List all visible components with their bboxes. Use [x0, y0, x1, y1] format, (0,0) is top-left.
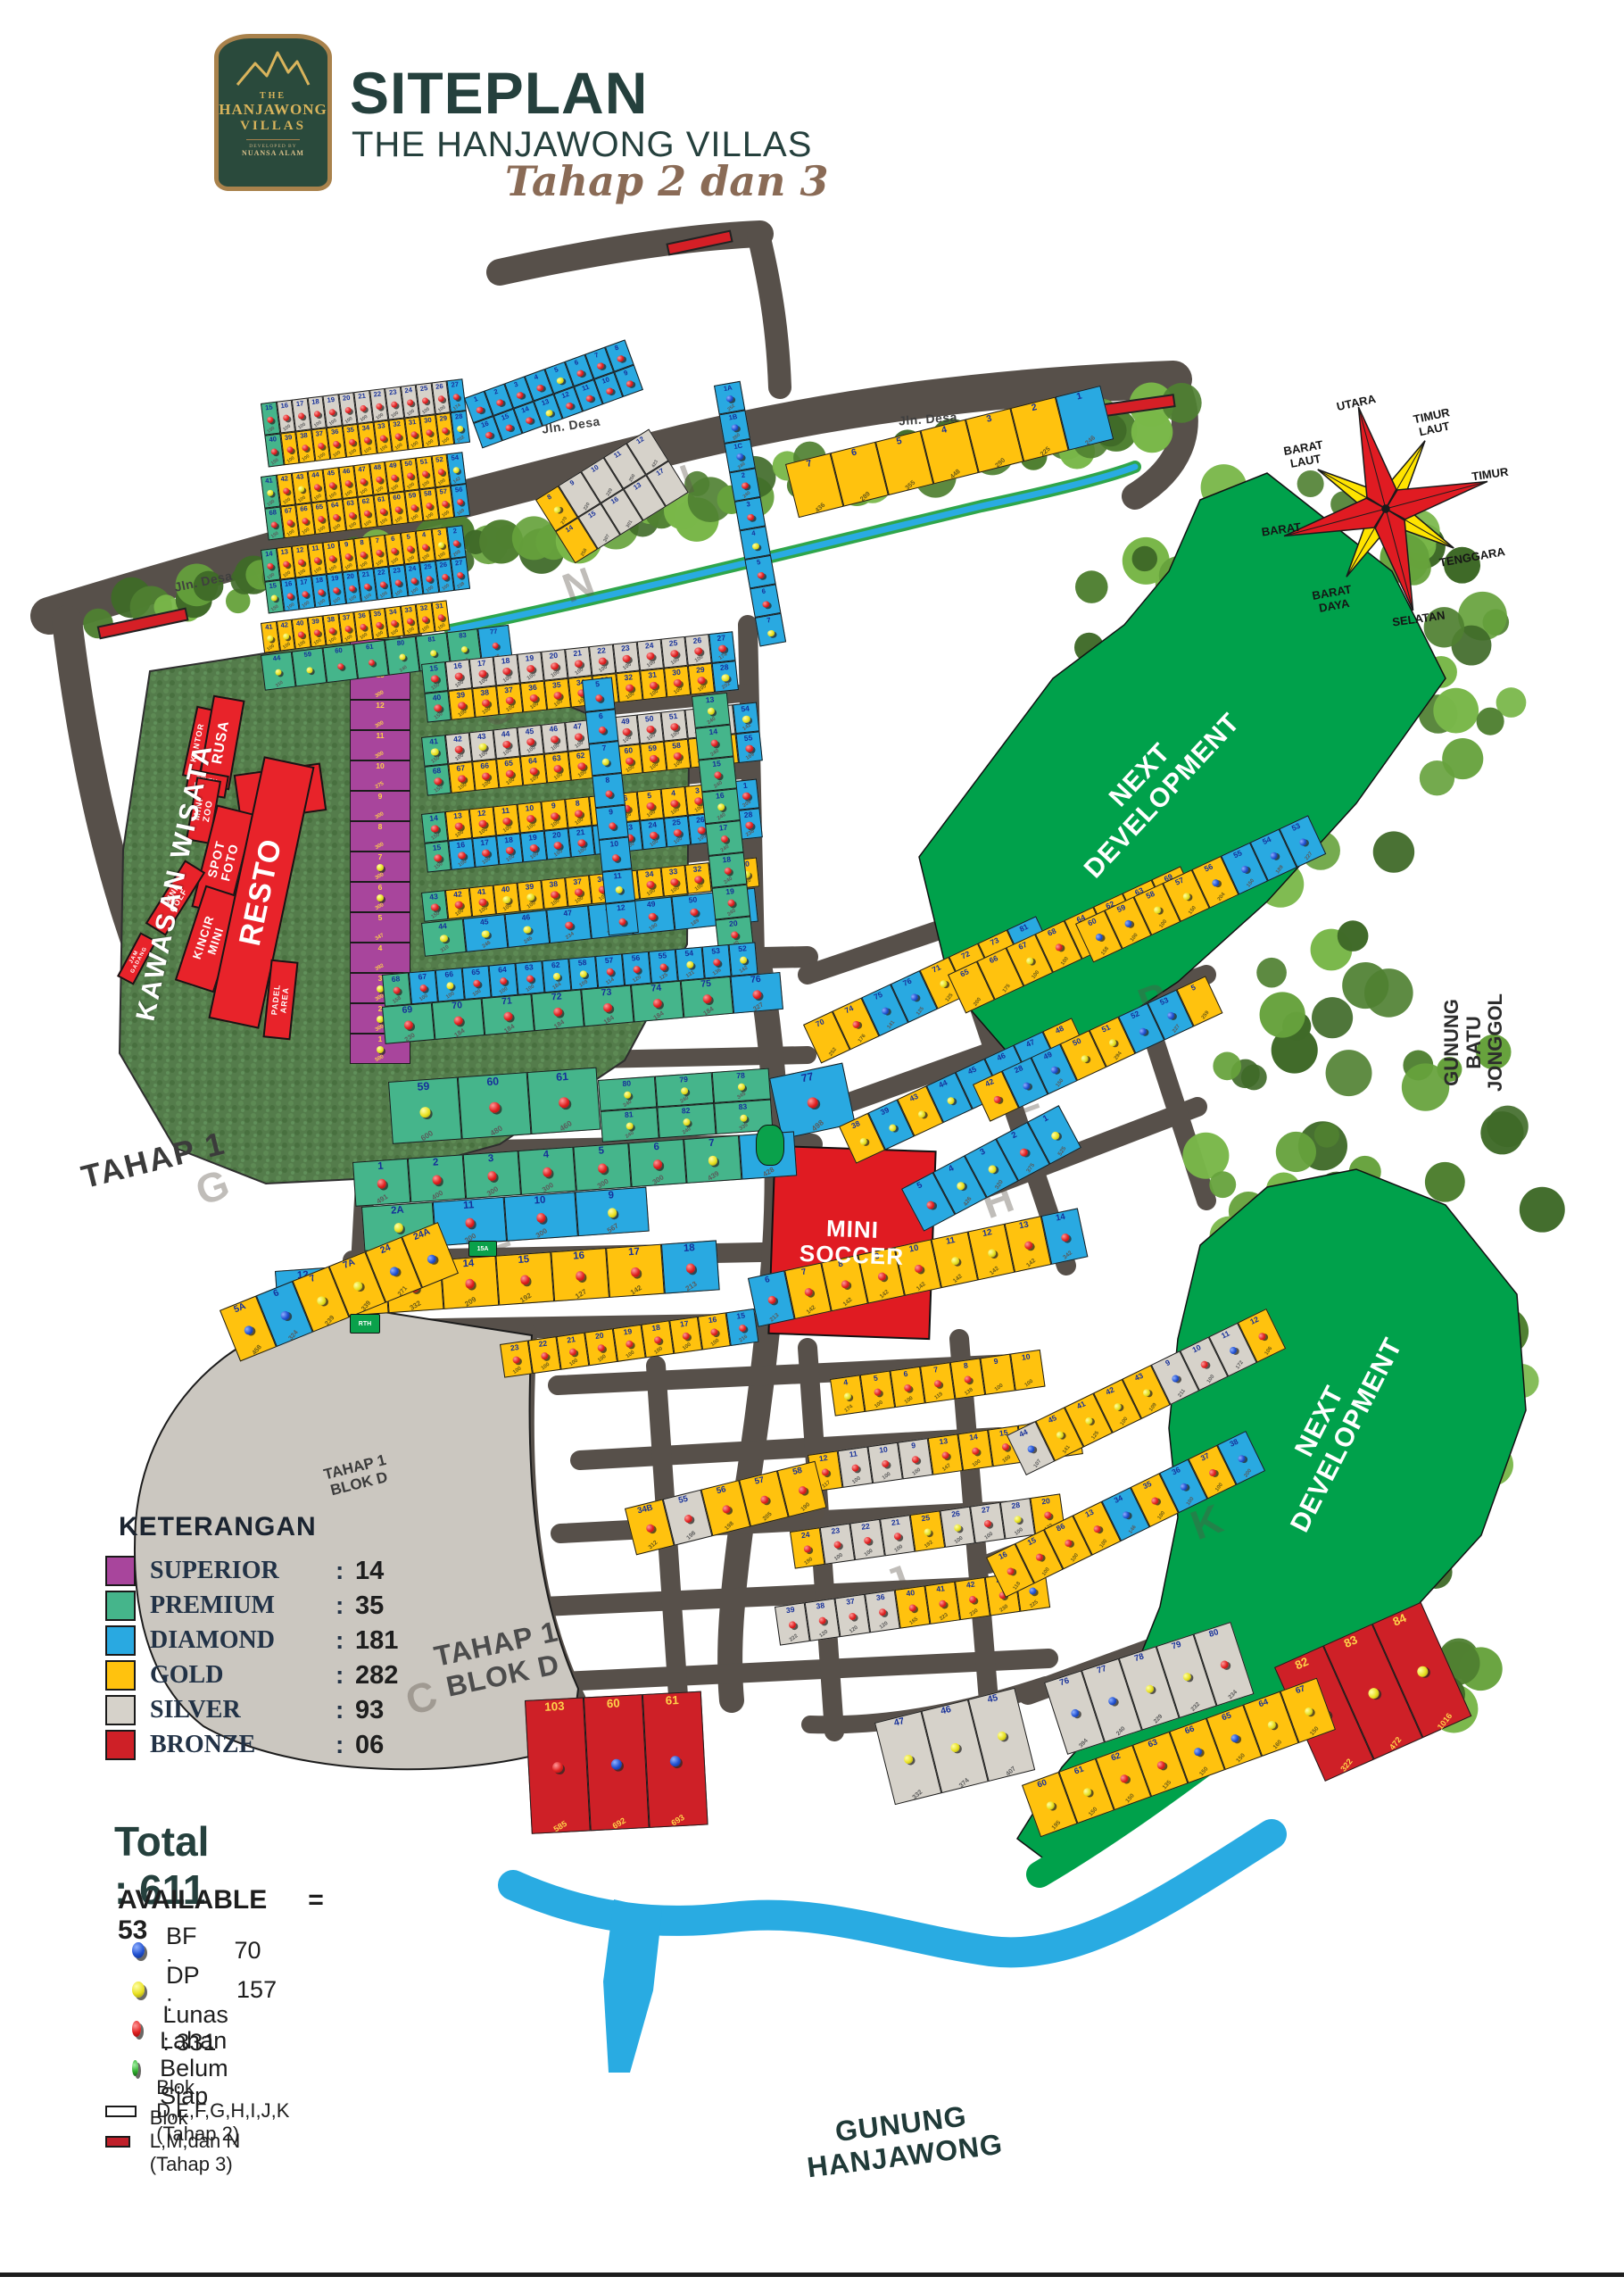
plot-number: 39 [525, 883, 534, 891]
plot-number: 6 [272, 1289, 280, 1300]
plot-size: 142 [990, 1267, 1001, 1277]
plot-size: 100 [506, 778, 517, 787]
legend-item-colon: : [336, 1731, 355, 1759]
plot-cell: 22100 [589, 644, 616, 676]
plot-cell: 41100 [469, 885, 496, 918]
plot-cell: 7439 [684, 1135, 742, 1184]
plot-size: 184 [652, 1010, 665, 1021]
plot-number: 3 [488, 1154, 494, 1165]
plot-number: 45 [327, 469, 335, 478]
status-pin-icon [798, 1485, 808, 1495]
status-pin-icon [348, 511, 355, 519]
plot-size: 189 [690, 919, 700, 928]
plot-number: 4 [751, 529, 756, 536]
plot-number: 6 [574, 359, 580, 367]
plot-number: 20 [343, 395, 351, 403]
plot-number: 2 [1010, 1131, 1018, 1141]
status-pin-icon [376, 476, 383, 483]
plot-number: 27 [455, 560, 463, 568]
plot-size: 100 [674, 760, 684, 769]
plot-number: 27 [981, 1506, 990, 1515]
status-pin-icon [388, 1266, 400, 1277]
plot-number: 16 [456, 841, 465, 849]
plot-number: 68 [1047, 927, 1057, 938]
status-pin-icon [1035, 1553, 1045, 1563]
plot-number: 4 [422, 531, 427, 538]
plot-size: 127 [575, 1288, 588, 1300]
plot-number: 2 [452, 528, 457, 535]
plot-cell: 54131 [675, 947, 705, 981]
plot-cell: 5100 [860, 1371, 896, 1412]
status-pin-icon [441, 573, 448, 580]
plot-number: 79 [679, 1076, 688, 1084]
plot-size: 165 [909, 1617, 920, 1627]
plot-number: 21 [573, 649, 582, 657]
plot-number: 83 [1342, 1633, 1359, 1649]
facility-label: MINI ZOO [192, 798, 215, 824]
plot-number: 9 [623, 370, 629, 378]
legend-item: PREMIUM:35 [105, 1590, 384, 1622]
plot-number: 18 [651, 1324, 661, 1333]
plot-number: 24 [648, 821, 657, 829]
plot-size: 100 [364, 519, 373, 528]
status-pin-icon [426, 502, 433, 509]
plot-size: 100 [422, 625, 431, 633]
plot-size: 300 [375, 873, 385, 882]
plot-cell: 39100 [517, 880, 543, 912]
legend-bar-row: Blok L,M,dan N (Tahap 3) [105, 2130, 247, 2153]
plot-number: 69 [402, 1006, 412, 1016]
plot-cell: 46100 [541, 722, 568, 754]
legend-item-label: SILVER [150, 1696, 336, 1724]
plot-cell: 11 [602, 868, 636, 903]
plot-number: 10 [525, 804, 534, 812]
status-pin-icon [360, 478, 367, 485]
plot-size: 100 [458, 860, 468, 868]
plot-cell: 103585 [525, 1698, 591, 1834]
status-pin-icon [903, 1754, 914, 1765]
plot-number: 42 [453, 890, 462, 898]
plot-cell: 4100 [661, 786, 688, 818]
plot-cell: 17142 [606, 1244, 665, 1298]
plot-cell: 44310 [421, 918, 467, 957]
plot-size: 190 [649, 924, 659, 933]
legend-item: SILVER:93 [105, 1694, 384, 1726]
plot-row: 6 [585, 709, 619, 744]
plot-number: 18 [315, 577, 323, 585]
plot-size: 100 [710, 1339, 721, 1349]
plot-number: 17 [480, 838, 489, 846]
plot-size: 100 [426, 439, 435, 447]
plot-number: 6 [764, 1275, 770, 1284]
plot-number: 5 [1189, 984, 1197, 993]
status-pin-icon [377, 1179, 387, 1190]
plot-number: 22 [597, 646, 606, 654]
plot-size: 100 [626, 765, 636, 774]
plot-number: 53 [711, 947, 720, 955]
plot-size: 100 [541, 1363, 551, 1373]
status-pin-icon [286, 446, 294, 453]
plot-number: 32 [393, 420, 401, 428]
plot-number: 49 [1042, 1051, 1053, 1061]
siteplan-poster: THE HANJAWONG VILLAS DEVELOPED BY NUANSA… [0, 0, 1624, 2285]
status-pin-icon [364, 510, 371, 517]
plot-number: 9 [608, 1191, 614, 1201]
status-pin-icon [318, 442, 325, 449]
plot-number: 4 [378, 944, 383, 952]
status-pin-icon [437, 613, 444, 620]
status-pin-icon [505, 424, 513, 432]
status-pin-icon [516, 392, 524, 400]
status-pin-icon [597, 1163, 608, 1174]
plot-size: 392 [375, 964, 385, 973]
plot-size: 100 [286, 456, 295, 464]
plot-number: 63 [525, 963, 534, 971]
plot-size: 240 [626, 1131, 636, 1140]
plot-number: 34 [389, 608, 397, 616]
status-pin-icon [904, 1384, 912, 1392]
plot-number: 13 [453, 811, 462, 819]
plot-number: 78 [736, 1072, 745, 1080]
status-pin-icon [1145, 1684, 1155, 1694]
plot-size: 100 [442, 437, 451, 445]
plot-number: 11 [581, 384, 590, 393]
status-pin-icon [710, 1328, 718, 1336]
plot-number: 16 [573, 1251, 584, 1262]
plot-cell: 10100 [1010, 1350, 1046, 1391]
status-pin-icon [267, 489, 274, 496]
plot-number: 86 [1055, 1522, 1065, 1533]
plot-number: 67 [418, 973, 427, 981]
status-pin-icon [1199, 1360, 1209, 1370]
plot-cell: 53136 [702, 944, 732, 978]
plot-number: 11 [849, 1450, 858, 1458]
plot-number: 1 [742, 782, 748, 790]
plot-cell: 6300 [628, 1139, 686, 1187]
status-pin-icon [360, 623, 367, 630]
status-pin-icon [840, 1280, 849, 1290]
plot-number: 5 [896, 437, 903, 448]
plot-row: 5 [582, 677, 616, 711]
status-pin-icon [606, 968, 614, 976]
plot-size: 184 [453, 1027, 466, 1039]
status-pin-icon [419, 985, 427, 993]
status-pin-icon [624, 1091, 632, 1099]
plot-cell: 25192 [910, 1510, 946, 1551]
plot-number: 64 [498, 966, 507, 974]
plot-number: 7 [601, 744, 607, 752]
plot-number: 60 [335, 647, 343, 655]
plot-number: 81 [427, 636, 435, 644]
plot-number: 34B [636, 1504, 653, 1516]
plot-cell: 25100 [664, 816, 691, 848]
status-pin-icon [270, 448, 278, 455]
plot-cell: 11300 [350, 730, 410, 760]
status-pin-icon [633, 966, 641, 974]
plot-number: 74 [650, 985, 661, 994]
plot-number: 36 [1171, 1466, 1181, 1476]
status-pin-icon [742, 482, 749, 489]
plot-number: 10 [1191, 1343, 1202, 1354]
plot-size: 192 [924, 1541, 935, 1550]
status-pin-icon [556, 377, 564, 385]
plot-number: 11 [463, 1201, 475, 1211]
plot-size: 480 [489, 1125, 504, 1138]
plot-cell: 61460 [527, 1068, 601, 1134]
status-pin-icon [526, 975, 534, 983]
plot-number: 50 [688, 896, 697, 904]
plot-size: 100 [874, 1400, 885, 1410]
premium-swatch [105, 1591, 136, 1621]
plot-cell: 26100 [940, 1507, 975, 1548]
status-pin-icon [683, 1118, 691, 1126]
plot-cell: 7300 [350, 852, 410, 882]
plot-number: 64 [1257, 1698, 1269, 1709]
legend-item-count: 35 [355, 1591, 384, 1621]
plot-size: 100 [379, 591, 388, 599]
plot-number: 68 [269, 509, 277, 517]
status-pin-icon [893, 1533, 901, 1541]
plot-size: 310 [440, 945, 451, 954]
plot-cell: 11100 [838, 1447, 874, 1488]
plot-row: 1A252 [714, 381, 745, 415]
status-pin-icon [1092, 1525, 1102, 1534]
diamond-swatch [105, 1625, 136, 1656]
status-pin-icon [833, 1541, 841, 1549]
plot-strip: 802407924078345812408224083335 [598, 1068, 773, 1142]
plot-number: 48 [1054, 1025, 1065, 1035]
plot-size: 300 [375, 721, 385, 730]
plot-number: 27 [451, 381, 459, 389]
plot-number: 12 [617, 903, 626, 911]
status-pin-icon [541, 1352, 549, 1360]
plot-cell: 78345 [712, 1068, 771, 1103]
plot-number: 40 [295, 619, 303, 627]
plot-number: 42 [1105, 1385, 1115, 1396]
plot-number: 44 [938, 1079, 949, 1090]
status-pin-icon [520, 1275, 531, 1285]
plot-cell: 17100 [469, 657, 496, 689]
plot-number: 49 [621, 718, 630, 726]
legend-item-label: PREMIUM [150, 1591, 336, 1620]
status-pin-icon [759, 1495, 769, 1505]
plot-size: 142 [953, 1275, 965, 1285]
status-pin-icon [610, 1758, 622, 1770]
status-pin-icon [441, 500, 448, 507]
plot-number: 7 [309, 1275, 317, 1285]
plot-cell: 17100 [669, 1317, 702, 1354]
plot-cell: 50189 [671, 893, 717, 931]
plot-row: 17240 [705, 820, 744, 856]
plot-number: 47 [563, 909, 572, 917]
plot-row: 9 [595, 805, 629, 840]
plot-number: 12 [560, 391, 570, 400]
status-pin-icon [726, 395, 733, 403]
plot-size: 100 [437, 623, 446, 631]
plot-number: 38 [549, 880, 558, 888]
plot-number: 8 [378, 823, 383, 831]
plot-number: 60 [607, 1697, 620, 1709]
status-pin-icon [1056, 1431, 1065, 1441]
plot-size: 300 [486, 1185, 500, 1198]
plot-size: 169 [457, 509, 466, 517]
status-pin-icon [710, 739, 718, 747]
plot-size: 100 [333, 524, 342, 532]
plot-number: 54 [1262, 835, 1272, 846]
status-pin-icon [328, 554, 336, 561]
plot-size: 100 [577, 847, 588, 856]
status-pin-icon [377, 894, 384, 902]
plot-size: 192 [519, 1292, 533, 1305]
plot-number: 83 [738, 1102, 747, 1110]
plot-size: 100 [526, 902, 537, 910]
plot-size: 230 [403, 1031, 416, 1043]
status-pin-icon [316, 1295, 327, 1307]
status-pin-icon [333, 440, 340, 447]
status-pin-icon [302, 590, 309, 597]
status-pin-icon [391, 474, 398, 481]
plot-number: 28 [1011, 1501, 1021, 1510]
plot-number: 74 [843, 1004, 854, 1015]
status-pin-icon [721, 835, 729, 843]
plot-size: 198 [725, 1522, 736, 1533]
plot-size: 184 [602, 1014, 615, 1026]
plot-size: 150 [434, 785, 444, 794]
status-pin-icon [394, 579, 402, 586]
plot-number: 7 [806, 460, 813, 470]
plot-cell: 21100 [565, 646, 592, 678]
plot-number: 41 [936, 1584, 946, 1593]
plot-number: 82 [1293, 1656, 1310, 1672]
plot-number: 10 [908, 1244, 919, 1254]
legend-bar-label: Blok L,M,dan N (Tahap 3) [150, 2106, 248, 2176]
plot-number: 6 [903, 1370, 908, 1378]
plot-number: 46 [996, 1051, 1007, 1062]
plot-number: 67 [1295, 1684, 1306, 1696]
status-pin-icon [344, 479, 352, 486]
status-pin-icon [964, 1375, 972, 1383]
plot-number: 37 [846, 1597, 856, 1606]
status-pin-icon [789, 1621, 797, 1629]
status-pin-icon [391, 547, 398, 554]
plot-cell: 11100 [493, 804, 520, 836]
status-pin-icon [736, 453, 743, 461]
plot-number: 15 [587, 510, 597, 519]
plot-size: 100 [553, 700, 564, 709]
plot-cell: 34100 [637, 868, 664, 900]
plot-size: 100 [577, 770, 588, 779]
plot-number: 8 [605, 776, 610, 784]
plot-number: 19 [725, 887, 734, 895]
plot-cell: 24100 [637, 639, 664, 671]
plot-cell: 5300 [573, 1142, 631, 1191]
status-pin-icon [440, 935, 448, 943]
legend-bar-swatch [105, 2106, 137, 2117]
status-pin-icon [333, 513, 340, 520]
plot-number: 35 [552, 681, 561, 689]
status-pin-icon [1266, 1720, 1277, 1731]
plot-number: 7 [593, 352, 600, 360]
plot-size: 345 [737, 1093, 748, 1101]
plot-number: 9 [551, 802, 557, 810]
plot-number: 13 [541, 398, 551, 407]
legend-item-colon: : [336, 1661, 355, 1690]
plot-cell: 55169 [736, 731, 763, 763]
plot-number: 2 [1031, 403, 1038, 414]
plot-number: 46 [343, 468, 351, 476]
plot-number: 45 [1047, 1414, 1057, 1425]
status-pin-icon [807, 1096, 819, 1109]
plot-number: 8 [360, 539, 364, 546]
plot-number: 1 [377, 1162, 384, 1173]
status-pin-icon [512, 1356, 520, 1364]
plot-cell: 25100 [661, 636, 688, 669]
plot-number: 52 [738, 944, 747, 952]
plot-number: 35 [1142, 1480, 1153, 1491]
plot-row: 8 [592, 773, 626, 808]
plot-cell: 9100 [898, 1438, 933, 1479]
plot-number: 18 [722, 855, 731, 863]
plot-number: 33 [404, 606, 412, 614]
plot-cell: 56120 [622, 951, 651, 985]
status-pin-icon [681, 1087, 689, 1095]
plot-number: 66 [300, 505, 308, 513]
plot-number: 21 [361, 570, 369, 578]
plot-number: 11 [1220, 1329, 1230, 1340]
plot-number: 43 [1133, 1372, 1144, 1383]
status-pin-icon [360, 551, 367, 558]
status-pin-icon [585, 395, 593, 403]
plot-size: 332 [409, 1300, 422, 1312]
status-pin-icon [766, 1295, 776, 1305]
plot-number: 50 [645, 715, 654, 723]
status-pin-icon [626, 1122, 634, 1130]
plot-number: 23 [831, 1526, 841, 1535]
plot-cell: 14150 [421, 811, 448, 843]
status-pin-icon [724, 868, 732, 876]
plot-number: 11 [613, 872, 622, 880]
status-pin-icon [888, 1124, 898, 1134]
plot-cell: 40100 [493, 883, 520, 915]
plot-size: 300 [375, 812, 385, 821]
plot-number: 66 [1184, 1724, 1196, 1736]
status-pin-icon [596, 362, 604, 370]
plot-strip: 1035856069261693 [525, 1691, 708, 1834]
status-pin-icon [731, 424, 738, 431]
plot-number: 55 [658, 951, 667, 960]
plot-number: 33 [668, 868, 677, 876]
plot-number: 38 [300, 432, 308, 440]
plot-number: 23 [389, 388, 397, 396]
plot-size: 300 [597, 1178, 610, 1191]
plot-size: 150 [271, 604, 280, 612]
plot-number: 46 [940, 1706, 952, 1717]
plot-number: 37 [504, 685, 513, 694]
legend-item: DIAMOND:181 [105, 1624, 398, 1657]
status-pin-icon [406, 472, 413, 479]
plot-number: 21 [576, 828, 584, 836]
plot-number: 75 [873, 991, 883, 1001]
plot-size: 225 [1030, 1600, 1040, 1610]
plot-number: 2 [493, 388, 500, 396]
plot-cell: 9100 [980, 1354, 1015, 1395]
plot-number: 2A [391, 1206, 404, 1217]
status-pin-icon [803, 1545, 811, 1553]
mountains-icon [233, 46, 313, 87]
plot-number: 3 [979, 1148, 987, 1158]
plot-number: 57 [754, 1475, 766, 1486]
plot-cell: 60 [322, 644, 358, 683]
